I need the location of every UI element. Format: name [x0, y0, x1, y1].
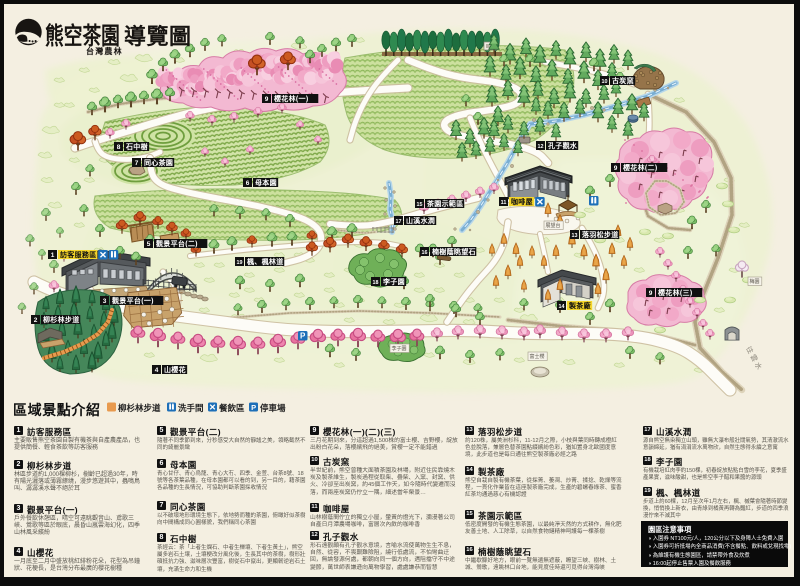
svg-text:母本園: 母本園	[255, 178, 277, 187]
svg-text:櫻花林(一): 櫻花林(一)	[273, 94, 308, 103]
svg-text:製茶廠: 製茶廠	[568, 301, 592, 310]
svg-text:落羽松步道: 落羽松步道	[582, 230, 619, 239]
svg-text:8: 8	[117, 144, 121, 151]
svg-text:觀景平台(二): 觀景平台(二)	[156, 239, 198, 248]
svg-text:17: 17	[396, 219, 402, 225]
svg-text:2: 2	[34, 317, 38, 324]
svg-text:16: 16	[422, 250, 428, 256]
svg-text:往雲水: 往雲水	[744, 345, 765, 373]
svg-text:15: 15	[417, 202, 423, 208]
svg-text:11: 11	[501, 200, 507, 206]
svg-text:18: 18	[373, 280, 379, 286]
svg-text:觀景平台(一): 觀景平台(一)	[112, 296, 154, 305]
svg-text:楠樹蔭眺望石: 楠樹蔭眺望石	[431, 247, 476, 256]
svg-text:山溪水潤: 山溪水潤	[406, 216, 435, 225]
svg-text:1: 1	[51, 252, 55, 259]
svg-text:同心茶園: 同心茶園	[144, 158, 173, 167]
svg-text:李子園: 李子園	[392, 345, 407, 352]
svg-text:4: 4	[155, 367, 159, 374]
svg-text:古炭窯: 古炭窯	[612, 76, 634, 85]
svg-text:12: 12	[538, 144, 544, 150]
svg-text:梅園: 梅園	[750, 278, 760, 285]
svg-text:柳杉林步道: 柳杉林步道	[43, 315, 80, 324]
svg-text:5: 5	[147, 241, 151, 248]
svg-text:孔子觀水: 孔子觀水	[548, 141, 578, 150]
svg-text:櫻花林(二): 櫻花林(二)	[622, 163, 657, 172]
svg-text:山櫻花: 山櫻花	[164, 365, 186, 374]
svg-text:李子園: 李子園	[382, 277, 405, 286]
svg-text:咖啡屋: 咖啡屋	[511, 197, 533, 206]
svg-text:9: 9	[614, 165, 618, 172]
svg-text:10: 10	[602, 79, 608, 85]
svg-text:茶園示範區: 茶園示範區	[426, 199, 464, 208]
svg-text:14: 14	[559, 304, 565, 310]
svg-text:櫻花林(三): 櫻花林(三)	[657, 288, 692, 297]
svg-text:9: 9	[265, 96, 269, 103]
svg-text:楓、楓林道: 楓、楓林道	[247, 257, 284, 266]
svg-text:訪客服務區: 訪客服務區	[60, 250, 97, 259]
svg-text:7: 7	[135, 160, 139, 167]
svg-text:P: P	[300, 332, 306, 341]
svg-text:富士櫻: 富士櫻	[530, 353, 545, 360]
svg-text:石中樹: 石中樹	[125, 142, 148, 151]
svg-text:展望台: 展望台	[546, 222, 561, 229]
svg-text:19: 19	[237, 260, 243, 266]
svg-text:9: 9	[649, 290, 653, 297]
svg-text:6: 6	[246, 180, 250, 187]
svg-text:P: P	[251, 403, 256, 412]
svg-text:13: 13	[572, 233, 578, 239]
svg-text:3: 3	[103, 298, 107, 305]
